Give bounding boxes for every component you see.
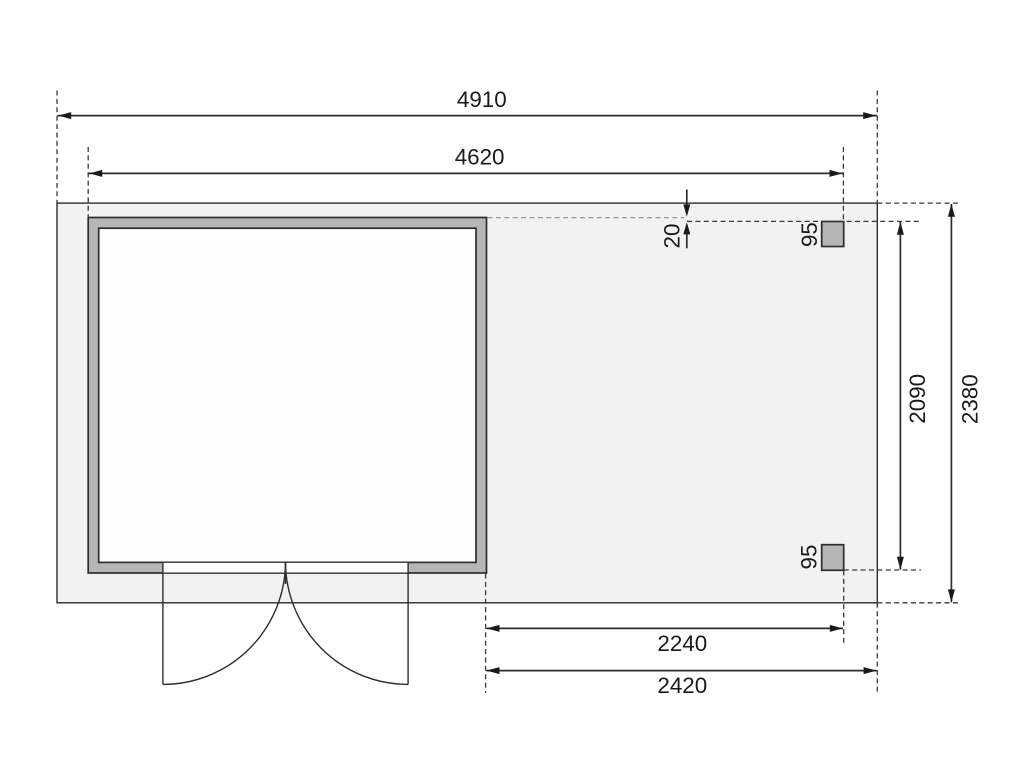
svg-text:4620: 4620 bbox=[455, 144, 505, 169]
svg-text:20: 20 bbox=[660, 224, 685, 249]
svg-text:2420: 2420 bbox=[657, 673, 707, 698]
svg-text:95: 95 bbox=[796, 545, 821, 570]
svg-text:2380: 2380 bbox=[957, 374, 982, 424]
svg-text:2090: 2090 bbox=[905, 374, 930, 424]
svg-text:2240: 2240 bbox=[657, 631, 707, 656]
svg-text:95: 95 bbox=[797, 222, 822, 247]
svg-text:4910: 4910 bbox=[457, 87, 507, 112]
